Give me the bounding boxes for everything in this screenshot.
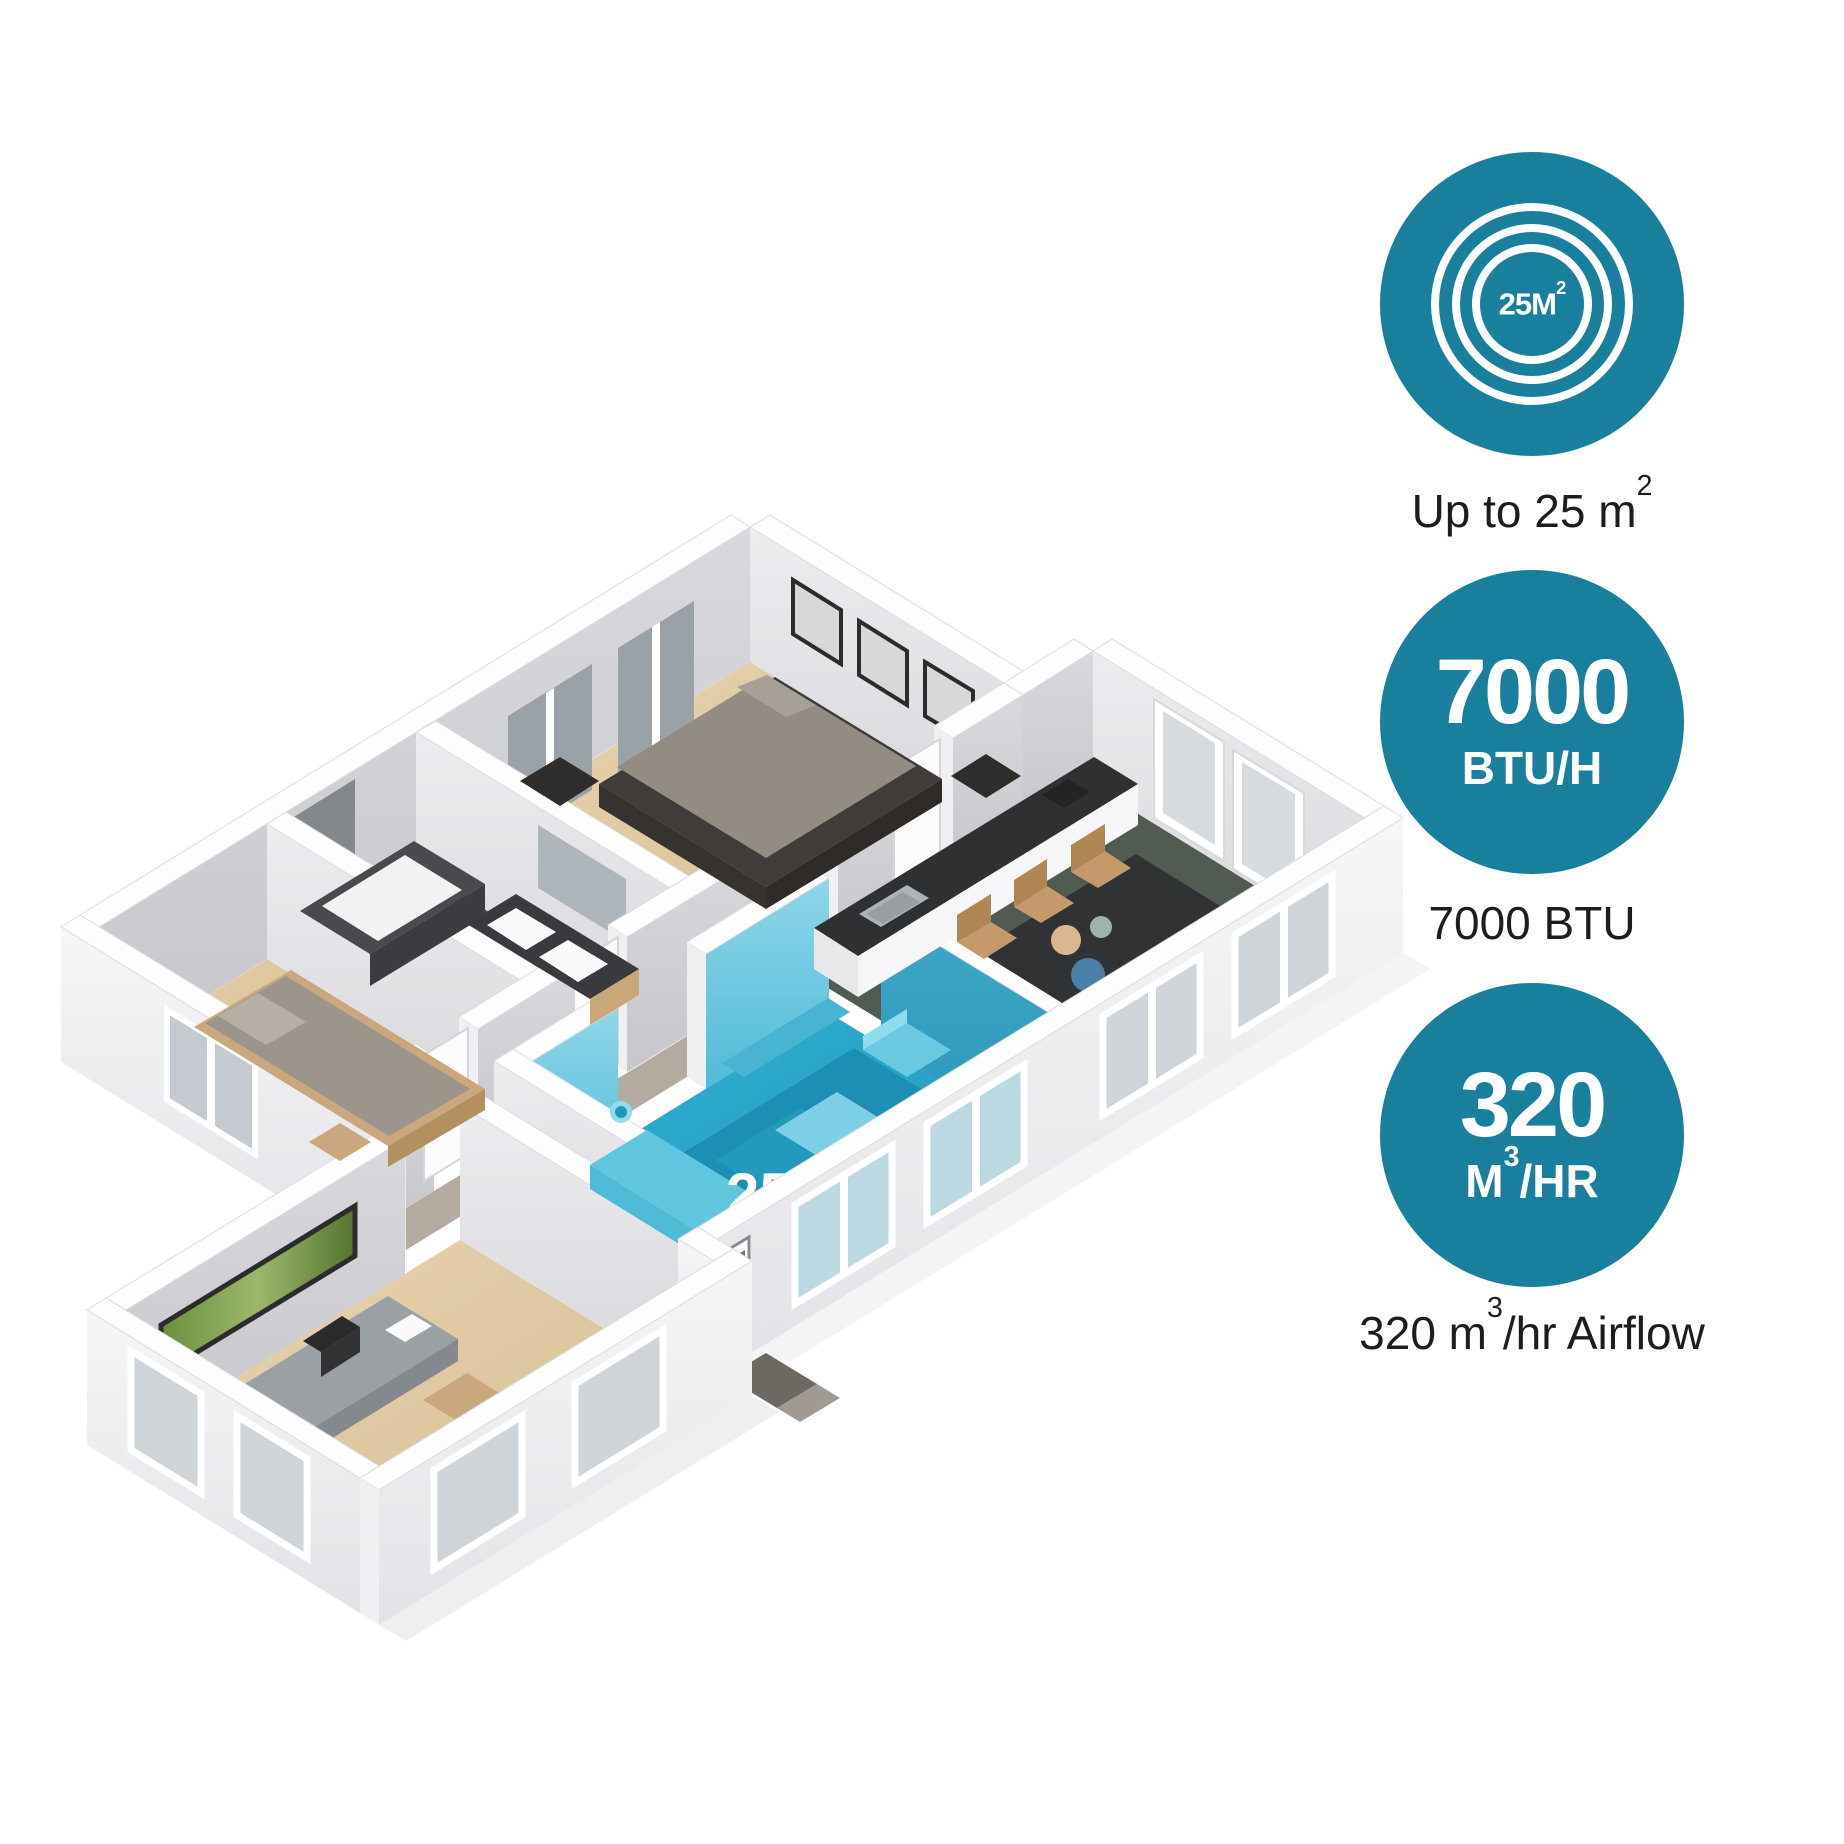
btu-badge-value: 7000 bbox=[1436, 649, 1629, 736]
coverage-badge-value: 25M2 bbox=[1499, 286, 1566, 322]
coverage-caption: Up to 25 m2 bbox=[1232, 484, 1832, 538]
airflow-badge-value: 320 bbox=[1460, 1062, 1605, 1149]
btu-caption: 7000 BTU bbox=[1232, 896, 1832, 950]
airflow-badge: 320 M3/HR bbox=[1380, 983, 1684, 1287]
btu-badge: 7000 BTU/H bbox=[1380, 570, 1684, 874]
btu-badge-unit: BTU/H bbox=[1462, 741, 1603, 795]
concentric-rings-icon: 25M2 bbox=[1431, 203, 1633, 405]
airflow-badge-unit: M3/HR bbox=[1465, 1154, 1598, 1208]
coverage-badge: 25M2 bbox=[1380, 152, 1684, 456]
airflow-caption: 320 m3/hr Airflow bbox=[1232, 1306, 1832, 1360]
infographic-canvas: 25 m2 bbox=[0, 0, 1844, 1844]
